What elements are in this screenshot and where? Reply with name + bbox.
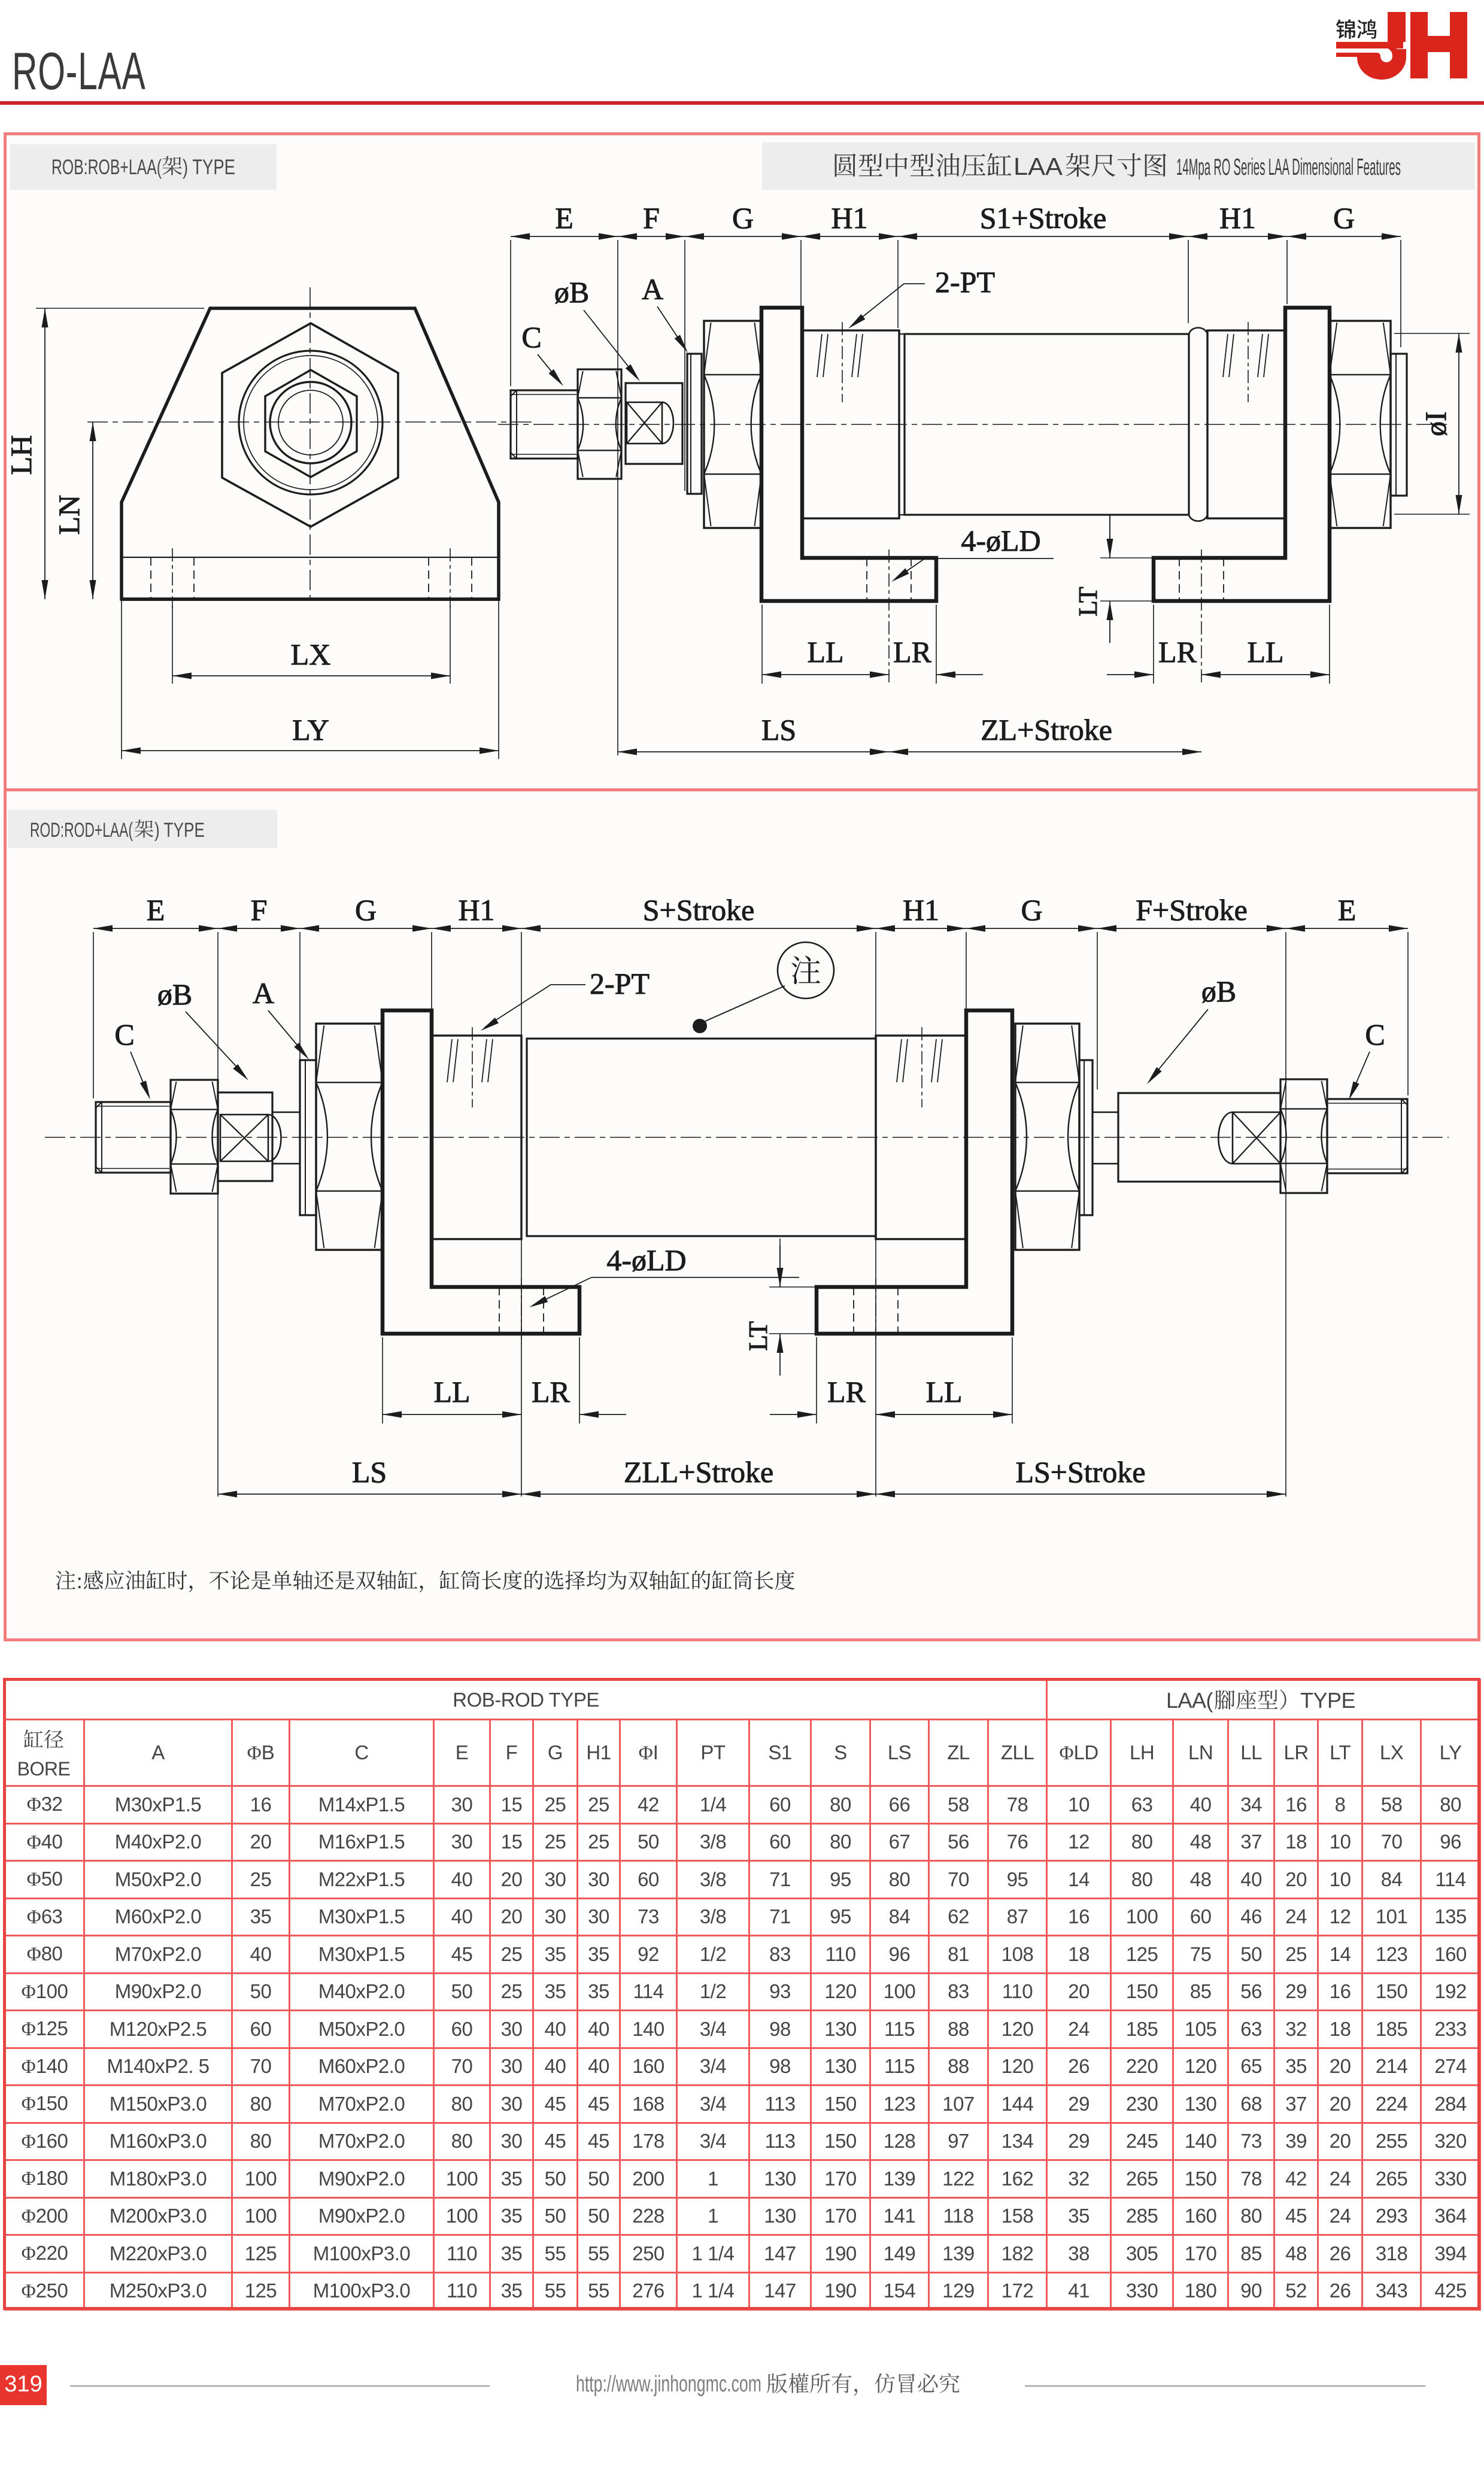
svg-text:LL: LL bbox=[1247, 635, 1283, 669]
svg-text:LR: LR bbox=[827, 1375, 866, 1408]
svg-text:E: E bbox=[555, 201, 573, 235]
svg-text:LS+Stroke: LS+Stroke bbox=[1015, 1455, 1145, 1489]
svg-text:LX: LX bbox=[291, 638, 331, 671]
svg-text:S1+Stroke: S1+Stroke bbox=[980, 201, 1107, 235]
svg-text:ZLL+Stroke: ZLL+Stroke bbox=[624, 1455, 773, 1489]
svg-text:H1: H1 bbox=[831, 201, 867, 235]
svg-text:C: C bbox=[521, 320, 541, 354]
svg-text:) TYPE: ) TYPE bbox=[154, 819, 205, 842]
svg-text:øB: øB bbox=[554, 275, 589, 309]
svg-text:LT: LT bbox=[1073, 587, 1103, 617]
svg-text:ROD:ROD+LAA(: ROD:ROD+LAA( bbox=[30, 819, 133, 842]
svg-text:LY: LY bbox=[292, 713, 329, 746]
svg-text:E: E bbox=[147, 893, 165, 927]
svg-text:4-øLD: 4-øLD bbox=[606, 1243, 686, 1277]
svg-text:LL: LL bbox=[925, 1375, 962, 1408]
svg-text:LN: LN bbox=[52, 495, 86, 535]
svg-text:LL: LL bbox=[433, 1375, 470, 1408]
svg-text:ROB:ROB+LAA(: ROB:ROB+LAA( bbox=[51, 156, 162, 179]
svg-text:C: C bbox=[1365, 1018, 1385, 1051]
svg-text:A: A bbox=[253, 976, 274, 1010]
svg-text:14Mpa RO Series LAA Dimensiona: 14Mpa RO Series LAA Dimensional Features bbox=[1176, 154, 1401, 180]
svg-text:øB: øB bbox=[157, 978, 192, 1011]
svg-text:http://www.jinhongmc.com: http://www.jinhongmc.com bbox=[576, 2372, 761, 2397]
svg-text:F: F bbox=[251, 893, 268, 927]
svg-text:G: G bbox=[1021, 893, 1042, 927]
svg-text:LL: LL bbox=[807, 635, 843, 669]
svg-text:H1: H1 bbox=[1219, 201, 1256, 235]
svg-text:G: G bbox=[1333, 201, 1355, 235]
svg-text:) TYPE: ) TYPE bbox=[183, 156, 235, 179]
svg-text:LS: LS bbox=[352, 1455, 387, 1489]
svg-text:LAA: LAA bbox=[1013, 153, 1063, 180]
svg-text:4-øLD: 4-øLD bbox=[961, 524, 1040, 557]
svg-text:A: A bbox=[642, 272, 663, 306]
svg-text:ZL+Stroke: ZL+Stroke bbox=[981, 713, 1112, 746]
svg-text:E: E bbox=[1338, 893, 1356, 927]
svg-text:LH: LH bbox=[4, 435, 38, 475]
svg-text:G: G bbox=[732, 201, 754, 235]
svg-text:H1: H1 bbox=[458, 893, 494, 927]
svg-text:2-PT: 2-PT bbox=[935, 265, 995, 299]
svg-text:LR: LR bbox=[1158, 635, 1197, 669]
svg-text:C: C bbox=[114, 1018, 134, 1051]
svg-text:øI: øI bbox=[1419, 411, 1452, 436]
svg-text:H1: H1 bbox=[903, 893, 939, 927]
svg-text:LR: LR bbox=[893, 635, 932, 669]
svg-text:2-PT: 2-PT bbox=[590, 967, 650, 1000]
svg-text:øB: øB bbox=[1201, 975, 1236, 1008]
svg-text:LS: LS bbox=[761, 713, 796, 746]
svg-text:LR: LR bbox=[532, 1375, 570, 1408]
svg-text:F: F bbox=[643, 201, 660, 235]
svg-text:G: G bbox=[355, 893, 377, 927]
svg-text:S+Stroke: S+Stroke bbox=[643, 893, 755, 927]
svg-text:F+Stroke: F+Stroke bbox=[1136, 893, 1248, 927]
svg-text:LT: LT bbox=[743, 1321, 773, 1351]
